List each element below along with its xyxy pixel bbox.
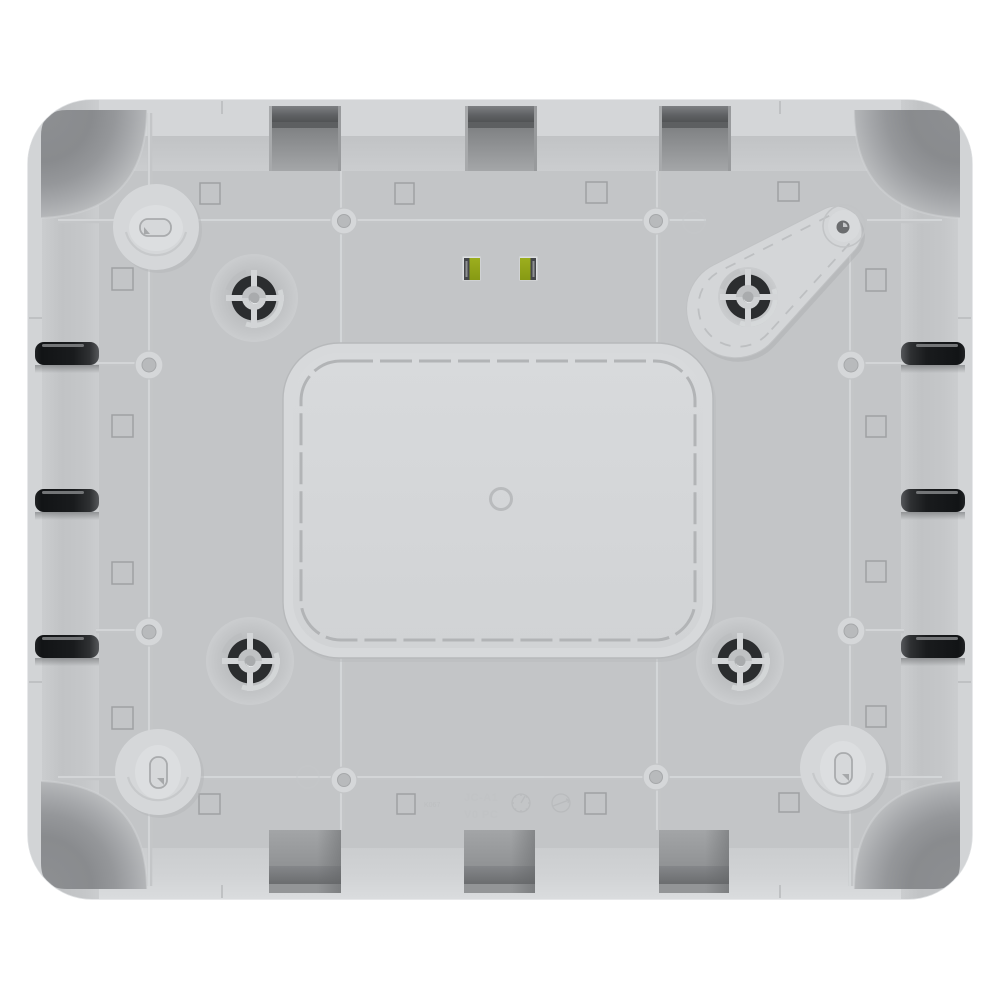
svg-text:K067: K067 [424, 802, 440, 809]
svg-text:V0 PC: V0 PC [464, 809, 498, 821]
svg-text:JC-A1: JC-A1 [464, 792, 498, 804]
